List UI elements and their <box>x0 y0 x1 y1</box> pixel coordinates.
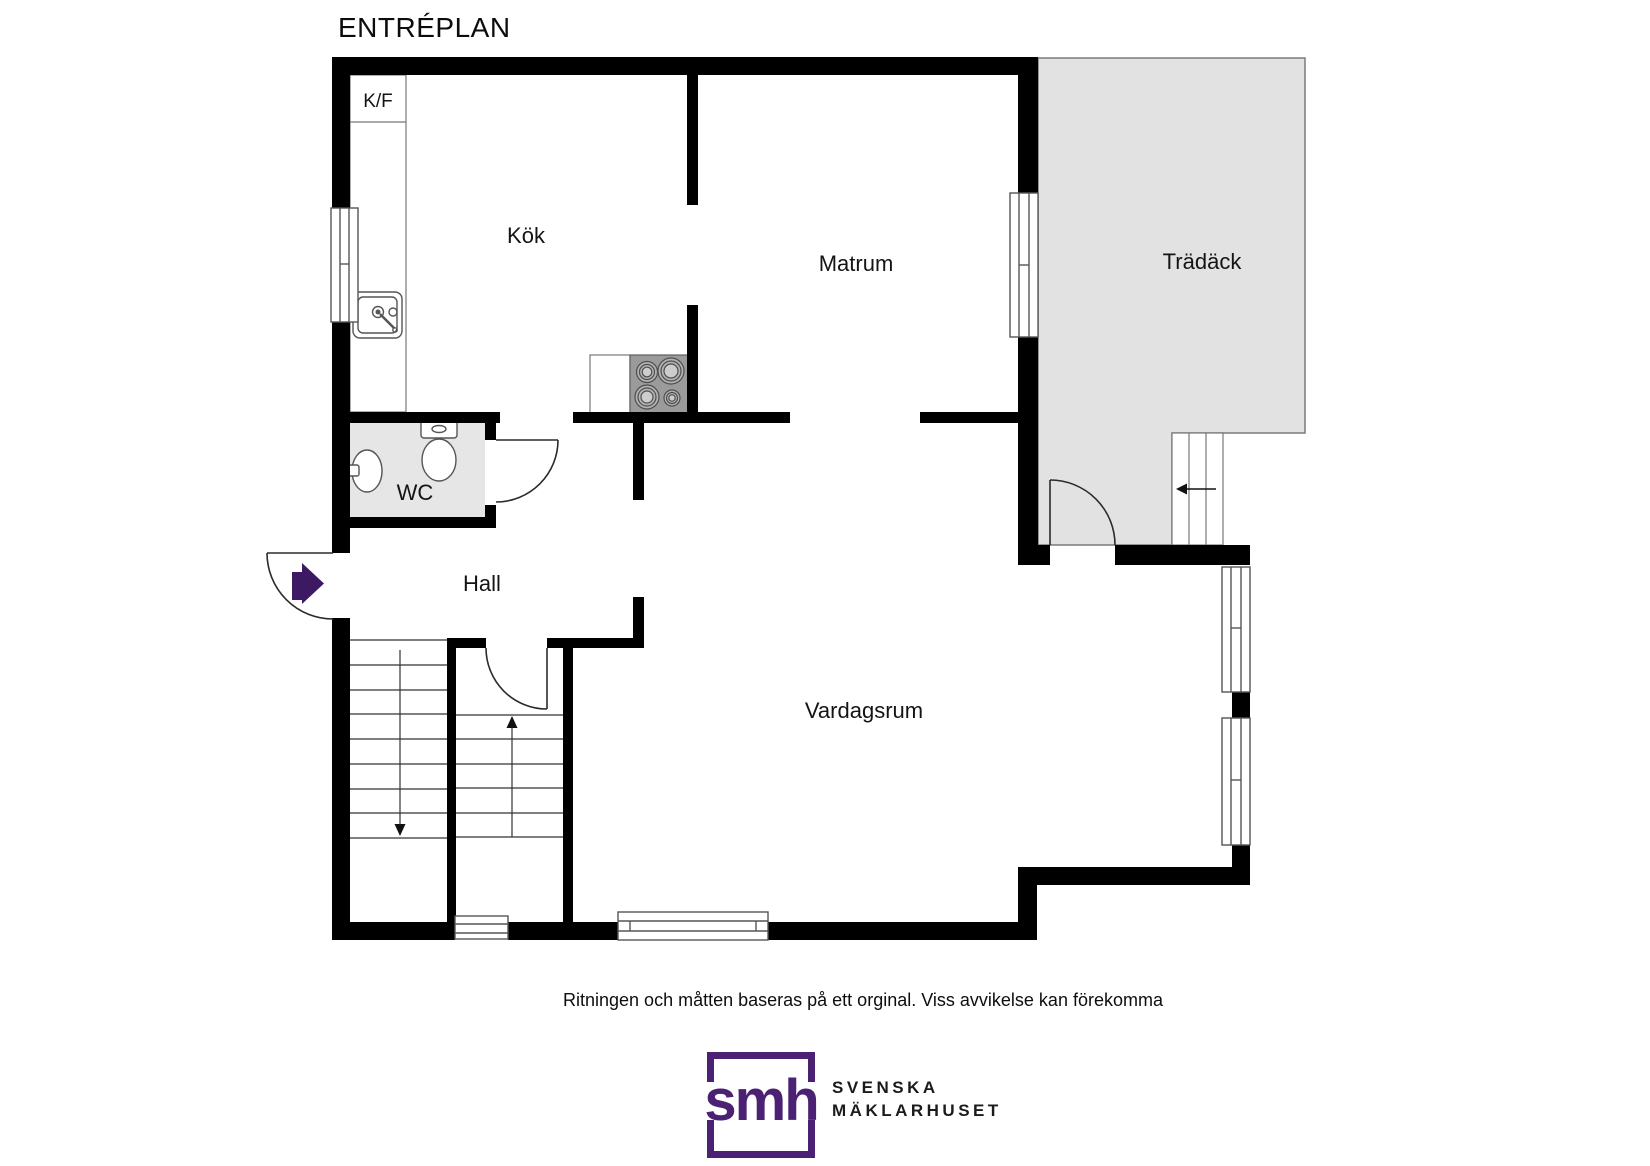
brand-line1: SVENSKA <box>832 1076 1002 1099</box>
vardagsrum-window-lower <box>1222 718 1250 845</box>
stairs-down <box>350 640 447 838</box>
disclaimer-text: Ritningen och måtten baseras på ett orgi… <box>563 990 1163 1011</box>
room-label-tradack: Trädäck <box>1163 249 1243 274</box>
room-label-kok: Kök <box>507 223 546 248</box>
vardagsrum-window-upper <box>1222 567 1250 692</box>
room-label-vardagsrum: Vardagsrum <box>805 698 923 723</box>
stairs-up <box>456 715 563 837</box>
kitchen-window <box>331 208 358 322</box>
entry-arrow-icon <box>292 563 324 604</box>
kitchen-sink <box>353 292 402 338</box>
logo-monogram: smh <box>699 1082 822 1120</box>
floor-plan-page: ENTRÉPLAN <box>0 0 1650 1166</box>
fridge-freezer-label: K/F <box>363 91 393 112</box>
plan-title: ENTRÉPLAN <box>338 12 511 44</box>
brand-line2: MÄKLARHUSET <box>832 1099 1002 1122</box>
room-label-wc: WC <box>397 480 434 505</box>
stair-window <box>455 916 508 939</box>
matrum-window <box>1010 193 1038 337</box>
deck-steps <box>1172 433 1223 545</box>
toilet <box>421 420 457 481</box>
room-label-matrum: Matrum <box>819 251 894 276</box>
vardagsrum-bottom-window <box>618 912 768 940</box>
wc-door <box>496 440 558 502</box>
floor-plan-drawing: Kök Matrum Trädäck WC Hall Vardagsrum K/… <box>0 0 1650 966</box>
stair-door <box>486 648 547 709</box>
room-label-hall: Hall <box>463 571 501 596</box>
brand-name: SVENSKA MÄKLARHUSET <box>832 1076 1002 1122</box>
stove-counter <box>590 355 630 413</box>
